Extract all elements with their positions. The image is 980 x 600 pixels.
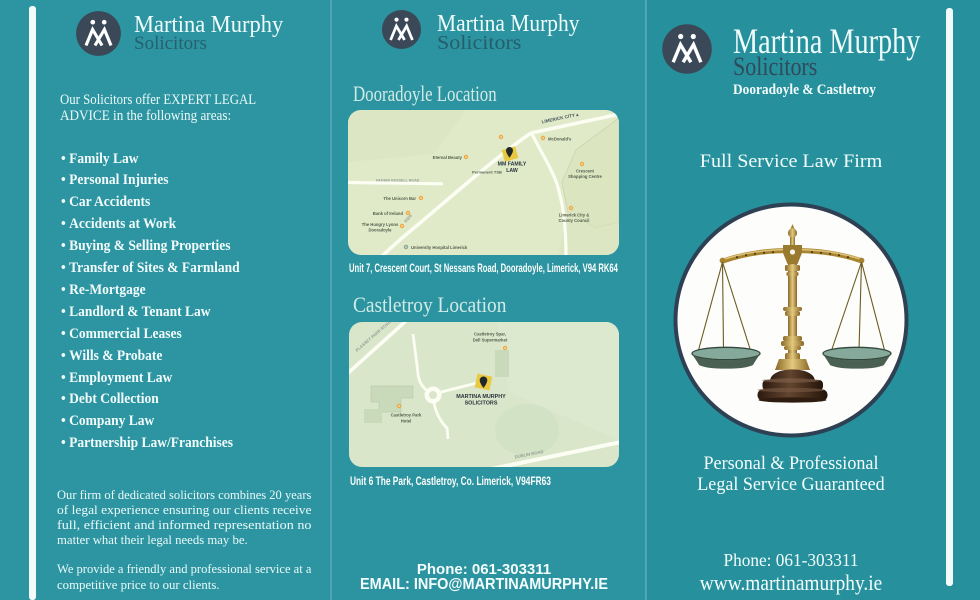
svg-text:Hotel: Hotel	[401, 419, 411, 424]
svg-text:Shopping Centre: Shopping Centre	[568, 174, 602, 179]
svg-text:Dooradoyle: Dooradoyle	[368, 228, 392, 233]
svg-text:MARTINA MURPHY: MARTINA MURPHY	[456, 394, 506, 400]
svg-text:University Hospital Limerick: University Hospital Limerick	[411, 245, 468, 250]
svg-text:Eternal Beauty: Eternal Beauty	[433, 155, 463, 160]
svg-text:SOLICITORS: SOLICITORS	[465, 401, 498, 407]
svg-text:Permanent TSB: Permanent TSB	[472, 170, 502, 175]
svg-text:McDonald's: McDonald's	[548, 137, 572, 142]
svg-text:The Hungry Lyons: The Hungry Lyons	[362, 222, 399, 227]
svg-text:County Council: County Council	[559, 218, 590, 223]
svg-text:LAW: LAW	[506, 168, 518, 174]
svg-text:Dell Supermarket: Dell Supermarket	[473, 338, 508, 343]
svg-text:Castletroy Park: Castletroy Park	[391, 413, 422, 418]
svg-text:Castletroy Spar,: Castletroy Spar,	[474, 332, 506, 337]
svg-text:Bank of Ireland: Bank of Ireland	[373, 211, 404, 216]
svg-text:Crescent: Crescent	[576, 169, 595, 174]
svg-text:The Unicorn Bar: The Unicorn Bar	[383, 196, 416, 201]
svg-text:FATHER RUSSELL ROAD: FATHER RUSSELL ROAD	[376, 179, 420, 183]
svg-text:Limerick City &: Limerick City &	[559, 213, 590, 218]
svg-text:MM FAMILY: MM FAMILY	[498, 162, 527, 168]
